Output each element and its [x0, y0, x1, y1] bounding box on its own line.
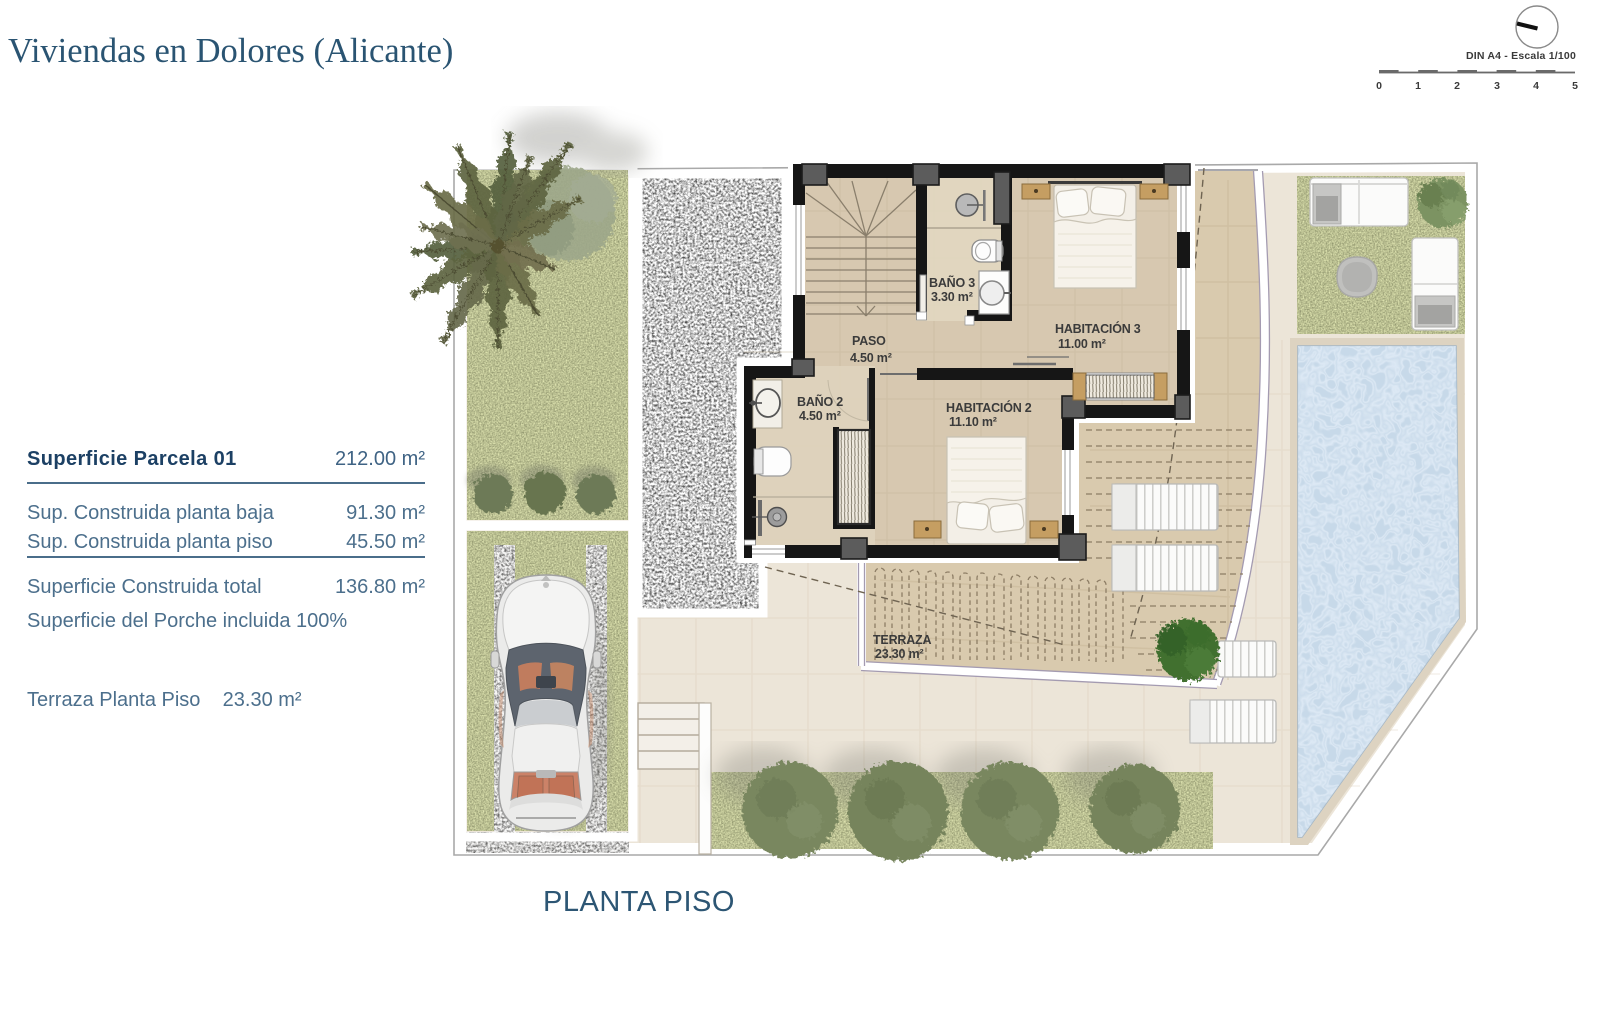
svg-text:BAÑO 2: BAÑO 2 [797, 394, 843, 409]
svg-text:3: 3 [1494, 80, 1500, 92]
svg-text:3.30 m²: 3.30 m² [931, 290, 973, 304]
svg-text:TERRAZA: TERRAZA [873, 633, 931, 647]
svg-text:0: 0 [1376, 80, 1382, 92]
svg-text:11.10 m²: 11.10 m² [949, 415, 997, 429]
svg-text:4.50 m²: 4.50 m² [799, 409, 841, 423]
svg-text:HABITACIÓN 3: HABITACIÓN 3 [1055, 321, 1141, 336]
svg-text:4: 4 [1533, 80, 1539, 92]
svg-text:11.00 m²: 11.00 m² [1058, 337, 1106, 351]
svg-text:HABITACIÓN 2: HABITACIÓN 2 [946, 400, 1032, 415]
svg-text:1: 1 [1415, 80, 1421, 92]
svg-text:BAÑO 3: BAÑO 3 [929, 275, 975, 290]
svg-text:23.30 m²: 23.30 m² [875, 647, 923, 661]
svg-text:PASO: PASO [852, 334, 886, 348]
svg-text:4.50 m²: 4.50 m² [850, 351, 892, 365]
svg-text:5: 5 [1572, 80, 1578, 92]
svg-text:2: 2 [1454, 80, 1460, 92]
